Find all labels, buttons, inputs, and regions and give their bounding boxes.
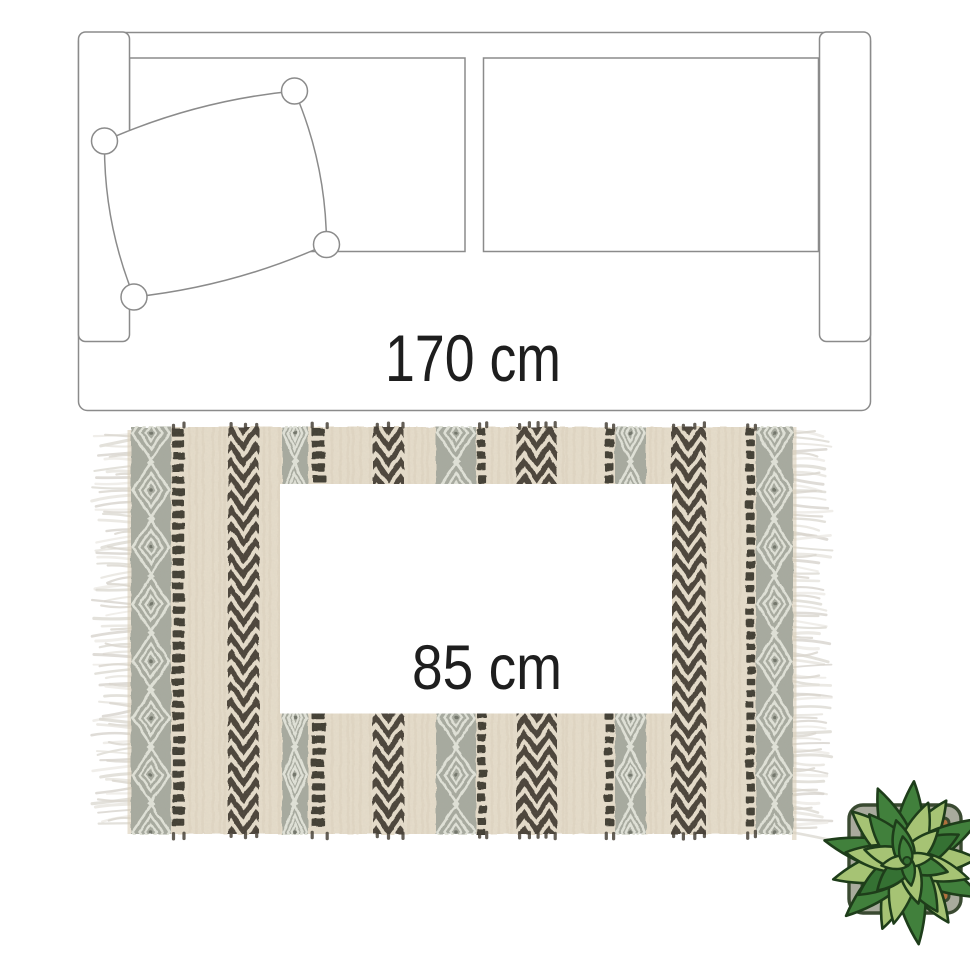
svg-text:170 cm: 170 cm <box>385 321 561 395</box>
svg-text:85 cm: 85 cm <box>412 633 562 703</box>
